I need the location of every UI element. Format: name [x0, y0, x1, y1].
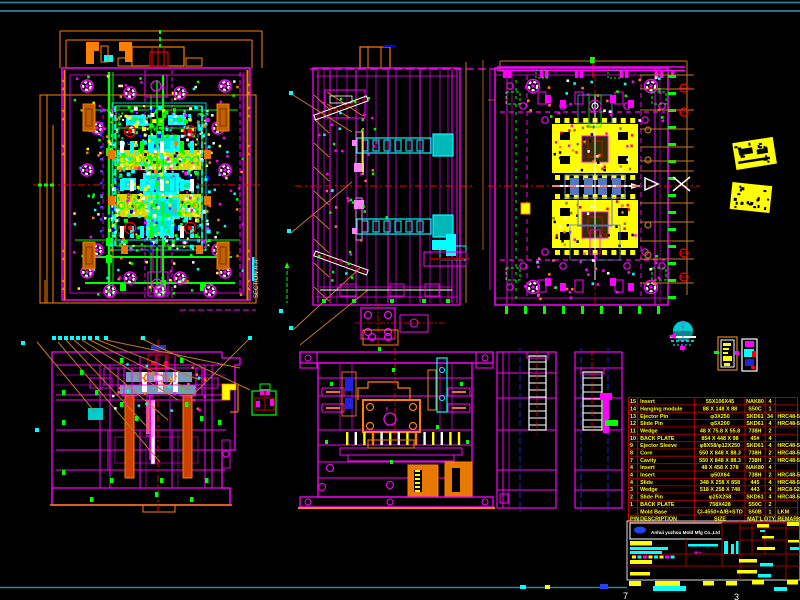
svg-text:4: 4 — [769, 443, 772, 449]
svg-text:1: 1 — [769, 406, 772, 412]
svg-text:4: 4 — [769, 399, 772, 405]
svg-text:CI-4550+A/B+STD: CI-4550+A/B+STD — [697, 509, 743, 515]
svg-text:Core: Core — [640, 451, 652, 457]
svg-text:738H: 738H — [749, 428, 762, 434]
svg-text:550 X 848 X 88.3: 550 X 848 X 88.3 — [699, 451, 741, 457]
svg-text:738H: 738H — [749, 458, 762, 464]
svg-text:S50C: S50C — [748, 406, 762, 412]
svg-text:LKM: LKM — [777, 509, 789, 515]
svg-text:BACK PLATE: BACK PLATE — [640, 502, 675, 508]
svg-text:SKD61: SKD61 — [746, 414, 763, 420]
svg-text:4: 4 — [769, 436, 772, 442]
svg-text:Wedge: Wedge — [640, 428, 658, 434]
svg-text:45#: 45# — [751, 436, 760, 442]
svg-text:10: 10 — [630, 436, 636, 442]
svg-text:SKD61: SKD61 — [746, 495, 763, 501]
svg-text:4: 4 — [769, 495, 772, 501]
svg-text:55X106X45: 55X106X45 — [706, 399, 734, 405]
svg-text:758X428: 758X428 — [709, 502, 731, 508]
svg-text:S50C: S50C — [748, 502, 762, 508]
svg-text:Wedge: Wedge — [640, 487, 658, 493]
svg-text:738H: 738H — [749, 473, 762, 479]
svg-text:Cavity: Cavity — [640, 458, 656, 464]
svg-text:NAK80: NAK80 — [746, 465, 764, 471]
svg-text:445: 445 — [751, 480, 760, 486]
svg-text:4: 4 — [769, 421, 772, 427]
svg-text:HRC48-52: HRC48-52 — [777, 495, 800, 501]
svg-text:4: 4 — [769, 487, 772, 493]
svg-text:7: 7 — [630, 458, 633, 464]
svg-text:7: 7 — [623, 591, 628, 600]
svg-text:φ8X58/φ12X250: φ8X58/φ12X250 — [700, 443, 740, 449]
svg-text:HRC48-52: HRC48-52 — [777, 451, 800, 457]
svg-text:HRC8-52: HRC8-52 — [777, 487, 799, 493]
svg-text:HRC48-52: HRC48-52 — [777, 421, 800, 427]
svg-text:Ejector Pin: Ejector Pin — [640, 414, 668, 420]
svg-text:738H: 738H — [749, 451, 762, 457]
svg-text:4: 4 — [630, 480, 633, 486]
svg-text:HRC48-52: HRC48-52 — [777, 473, 800, 479]
svg-text:Mold Base: Mold Base — [640, 509, 667, 515]
svg-text:Slide: Slide — [640, 480, 653, 486]
svg-text:φ3X250: φ3X250 — [710, 414, 729, 420]
svg-text:HRC48-52: HRC48-52 — [777, 480, 800, 486]
svg-text:348 X 258 X 858: 348 X 258 X 858 — [700, 480, 740, 486]
svg-text:HRC48-52: HRC48-52 — [777, 443, 800, 449]
svg-text:BACK PLATE: BACK PLATE — [640, 436, 675, 442]
svg-text:8: 8 — [630, 451, 633, 457]
svg-text:2: 2 — [769, 458, 772, 464]
svg-text:14: 14 — [630, 406, 636, 412]
svg-text:φ5X200: φ5X200 — [710, 421, 729, 427]
svg-text:88 X 148 X 88: 88 X 148 X 88 — [703, 406, 737, 412]
svg-text:Slide Pin: Slide Pin — [640, 421, 663, 427]
svg-text:443: 443 — [751, 487, 760, 493]
svg-text:3: 3 — [630, 487, 633, 493]
svg-text:Insert: Insert — [640, 465, 655, 471]
svg-text:2: 2 — [769, 502, 772, 508]
svg-text:2: 2 — [630, 495, 633, 501]
svg-text:9: 9 — [630, 443, 633, 449]
svg-text:HRC48-52: HRC48-52 — [777, 414, 800, 420]
svg-text:2: 2 — [769, 473, 772, 479]
svg-text:48 X 458 X 378: 48 X 458 X 378 — [701, 465, 738, 471]
svg-text:48 X 75.8 X 55.8: 48 X 75.8 X 55.8 — [700, 428, 740, 434]
svg-text:13: 13 — [630, 414, 636, 420]
svg-text:Insert: Insert — [640, 399, 655, 405]
svg-text:11: 11 — [630, 428, 636, 434]
svg-text:4: 4 — [630, 473, 633, 479]
svg-text:SKD61: SKD61 — [746, 443, 763, 449]
svg-text:12: 12 — [630, 421, 636, 427]
svg-text:φ50X64: φ50X64 — [710, 473, 729, 479]
svg-text:4: 4 — [769, 465, 772, 471]
svg-text:φ25X258: φ25X258 — [709, 495, 731, 501]
svg-text:NAK80: NAK80 — [746, 399, 764, 405]
svg-text:Insert: Insert — [640, 473, 655, 479]
svg-text:854 X 448 X 98: 854 X 448 X 98 — [701, 436, 738, 442]
svg-text:2: 2 — [769, 451, 772, 457]
svg-text:1: 1 — [630, 502, 633, 508]
svg-text:☨: ☨ — [385, 406, 389, 414]
svg-text:550 X 848 X 88.3: 550 X 848 X 88.3 — [699, 458, 741, 464]
svg-text:SECTION A-A: SECTION A-A — [254, 260, 260, 298]
svg-text:◈⇜: ◈⇜ — [694, 550, 703, 556]
svg-text:SKD61: SKD61 — [746, 421, 763, 427]
svg-text:Ejector Sleeve: Ejector Sleeve — [640, 443, 677, 449]
svg-text:34: 34 — [767, 414, 773, 420]
svg-text:3: 3 — [734, 592, 739, 600]
svg-text:15: 15 — [630, 399, 636, 405]
svg-text:518 X 258 X 748: 518 X 258 X 748 — [700, 487, 740, 493]
svg-text:Hanging module: Hanging module — [640, 406, 682, 412]
svg-text:4: 4 — [630, 465, 633, 471]
svg-text:1: 1 — [769, 509, 772, 515]
svg-text:4: 4 — [769, 480, 772, 486]
svg-text:HRC48-52: HRC48-52 — [777, 458, 800, 464]
svg-text:Slide Pin: Slide Pin — [640, 495, 663, 501]
svg-text:S50B: S50B — [748, 509, 762, 515]
svg-text:Anhui yuzhou Mold Mfg Co.,Ltd: Anhui yuzhou Mold Mfg Co.,Ltd — [651, 530, 720, 535]
svg-text:2: 2 — [769, 428, 772, 434]
